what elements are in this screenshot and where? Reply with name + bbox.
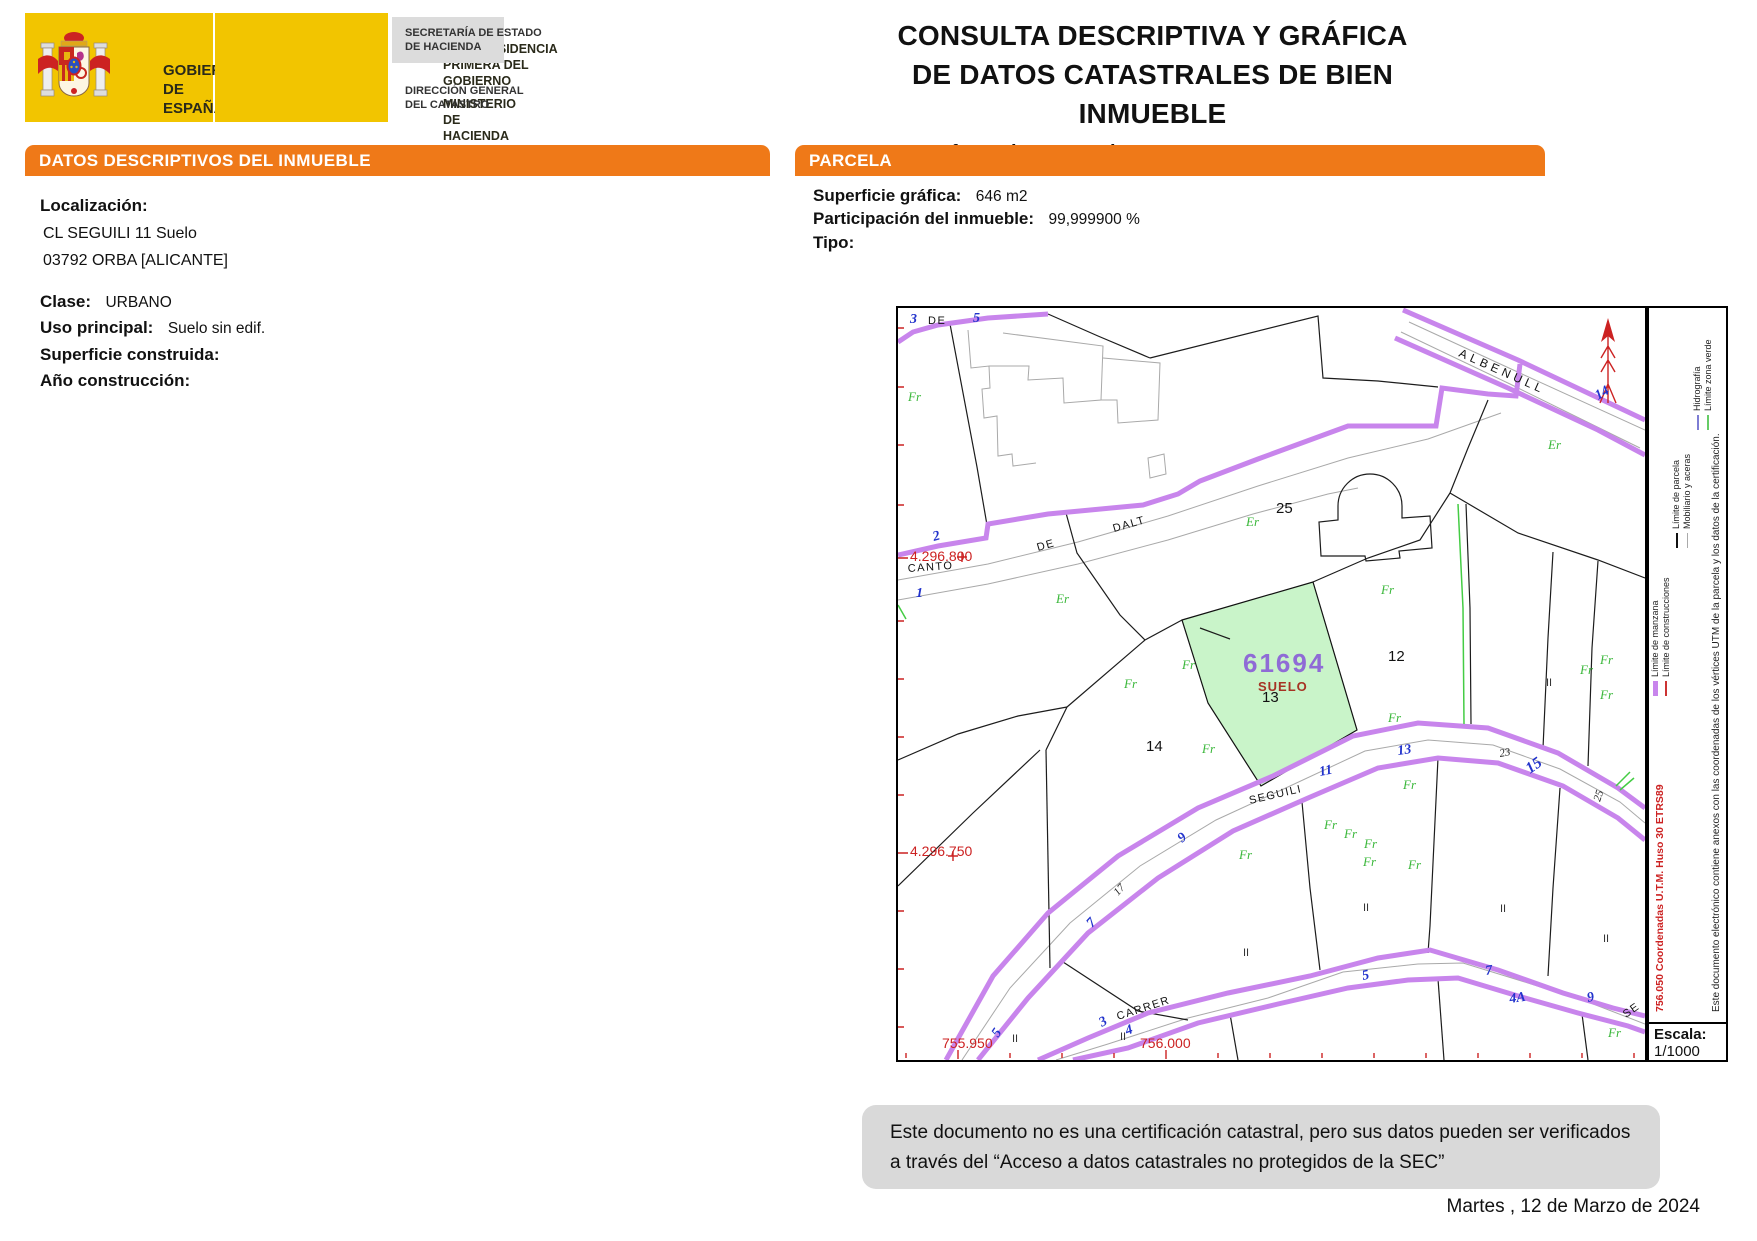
- map-label: II: [1546, 677, 1552, 689]
- legend-certification-note: Este documento electrónico contiene anex…: [1711, 433, 1722, 1012]
- cadastral-document-page: GOBIERNO DE ESPAÑA VICEPRESIDENCIA PRIME…: [0, 0, 1757, 1241]
- map-label: Fr: [1181, 657, 1196, 672]
- direccion-catastro-label: DIRECCIÓN GENERAL DEL CATASTRO: [405, 84, 524, 112]
- participacion-value: 99,999900 %: [1049, 211, 1140, 228]
- map-label: 23: [1498, 746, 1511, 760]
- map-label: Er: [1547, 437, 1562, 452]
- map-label: II: [1500, 903, 1506, 915]
- map-label: DE: [1036, 537, 1057, 554]
- map-label: DE: [928, 315, 946, 327]
- spain-coat-of-arms-icon: [37, 29, 111, 109]
- map-label: Fr: [1343, 826, 1358, 841]
- map-label: Fr: [1201, 741, 1216, 756]
- parcela-header-label: PARCELA: [809, 151, 892, 170]
- map-label: Fr: [1579, 662, 1594, 677]
- legend-item-label: Límite zona verde: [1703, 339, 1713, 411]
- tipo-label: Tipo:: [813, 233, 854, 252]
- superficie-construida-label: Superficie construida:: [40, 345, 219, 364]
- datos-header-bold: INMUEBLE: [278, 151, 371, 170]
- map-label: Er: [1245, 514, 1260, 529]
- map-label: Fr: [1402, 777, 1417, 792]
- map-label: 25: [1276, 500, 1293, 517]
- ministry-block: VICEPRESIDENCIA PRIMERA DEL GOBIERNO MIN…: [215, 13, 388, 122]
- map-label: Fr: [1362, 854, 1377, 869]
- legend-swatch-icon: [1676, 533, 1678, 548]
- superficie-grafica-label: Superficie gráfica:: [813, 186, 961, 205]
- legend-item: Límite de parcela: [1671, 460, 1681, 548]
- map-label: 5: [973, 311, 980, 326]
- document-title: CONSULTA DESCRIPTIVA Y GRÁFICA DE DATOS …: [845, 16, 1460, 165]
- map-label: 756.000: [1140, 1035, 1191, 1051]
- section-header-datos-descriptivos: DATOS DESCRIPTIVOS DEL INMUEBLE: [25, 145, 770, 176]
- participacion-row: Participación del inmueble: 99,999900 %: [813, 209, 1140, 229]
- map-label: Fr: [1380, 582, 1395, 597]
- map-label: 14: [1146, 738, 1163, 755]
- escala-label: Escala:: [1654, 1026, 1721, 1043]
- dome-building-outline: [1319, 474, 1432, 561]
- legend-swatch-icon: [1665, 681, 1667, 696]
- map-label: 4.296.750: [910, 843, 972, 859]
- map-label: 25: [1591, 788, 1606, 803]
- superficie-grafica-row: Superficie gráfica: 646 m2: [813, 186, 1027, 206]
- uso-principal-value: Suelo sin edif.: [168, 320, 265, 337]
- map-label: SE: [1621, 1000, 1642, 1020]
- tipo-row: Tipo:: [813, 233, 864, 253]
- map-label: 1: [916, 586, 923, 601]
- map-label: 3: [909, 312, 917, 327]
- map-label: Fr: [1599, 687, 1614, 702]
- disclaimer-box: Este documento no es una certificación c…: [862, 1105, 1660, 1189]
- legend-item-label: Límite de construcciones: [1661, 577, 1671, 677]
- legend-item: Límite de construcciones: [1661, 577, 1671, 696]
- gov-logo-block: GOBIERNO DE ESPAÑA: [25, 13, 213, 122]
- map-label: 4A: [1507, 990, 1526, 1007]
- legend-item-label: Límite de parcela: [1671, 460, 1681, 529]
- disclaimer-text: Este documento no es una certificación c…: [890, 1122, 1630, 1173]
- legend-item: Límite de manzana: [1650, 600, 1660, 696]
- parcel-parcel_id: 61694: [1243, 648, 1325, 678]
- legend-item-label: Mobiliario y aceras: [1682, 454, 1692, 529]
- map-label: II: [1243, 947, 1249, 959]
- document-date: Martes , 12 de Marzo de 2024: [1330, 1196, 1700, 1218]
- parcel-parcel_tag: SUELO: [1258, 679, 1308, 694]
- map-label: DALT: [1112, 514, 1147, 535]
- uso-principal-label: Uso principal:: [40, 318, 153, 337]
- map-label: Fr: [907, 389, 922, 404]
- uso-row: Uso principal: Suelo sin edif.: [40, 318, 265, 338]
- address-line-1: CL SEGUILI 11 Suelo: [43, 225, 197, 243]
- map-labels: 3DE5Fr24.296.800CANTO1DEDALTErEr25ALBENU…: [907, 311, 1642, 1051]
- section-header-parcela: PARCELA: [795, 145, 1545, 176]
- map-label: Fr: [1407, 857, 1422, 872]
- map-label: II: [1603, 933, 1609, 945]
- map-label: Fr: [1323, 817, 1338, 832]
- map-label: 2: [930, 529, 942, 546]
- legend-swatch-icon: [1653, 681, 1658, 696]
- legend-item: Hidrografía: [1692, 366, 1702, 430]
- localizacion-label: Localización:: [40, 196, 148, 215]
- superficie-construida-row: Superficie construida:: [40, 345, 229, 365]
- map-label: Fr: [1387, 710, 1402, 725]
- title-line-1: CONSULTA DESCRIPTIVA Y GRÁFICA: [845, 16, 1460, 55]
- map-label: Fr: [1599, 652, 1614, 667]
- datos-header-prefix: DATOS DESCRIPTIVOS DEL: [39, 151, 278, 170]
- map-label: II: [1363, 902, 1369, 914]
- legend-swatch-icon: [1687, 533, 1688, 548]
- map-label: Fr: [1123, 676, 1138, 691]
- clase-label: Clase:: [40, 292, 91, 311]
- legend-utm-note: 756.050 Coordenadas U.T.M. Huso 30 ETRS8…: [1654, 784, 1666, 1012]
- superficie-grafica-value: 646 m2: [976, 188, 1028, 205]
- anio-construccion-label: Año construcción:: [40, 371, 190, 390]
- map-label: II: [1012, 1033, 1018, 1045]
- map-label: 755.950: [942, 1035, 993, 1051]
- clase-row: Clase: URBANO: [40, 292, 172, 312]
- legend-item: Mobiliario y aceras: [1682, 454, 1692, 548]
- clase-value: URBANO: [105, 294, 171, 311]
- map-label: 12: [1388, 648, 1405, 665]
- secretaria-label: SECRETARÍA DE ESTADO DE HACIENDA: [405, 26, 542, 54]
- map-label: 5: [1361, 968, 1371, 984]
- escala-value: 1/1000: [1654, 1043, 1721, 1060]
- map-label: 13: [1396, 742, 1412, 759]
- legend-item-label: Límite de manzana: [1650, 600, 1660, 677]
- localizacion-row: Localización:: [40, 196, 148, 216]
- legend-item: Límite zona verde: [1703, 339, 1713, 430]
- map-label: 9: [1586, 990, 1596, 1006]
- legend-swatch-icon: [1697, 415, 1699, 430]
- anio-construccion-row: Año construcción:: [40, 371, 200, 391]
- legend-swatch-icon: [1707, 415, 1709, 430]
- cadastral-map: 3DE5Fr24.296.800CANTO1DEDALTErEr25ALBENU…: [896, 306, 1647, 1062]
- map-label: Fr: [1238, 847, 1253, 862]
- legend-rotated-content: 756.050 Coordenadas U.T.M. Huso 30 ETRS8…: [1649, 308, 1724, 1018]
- address-line-2: 03792 ORBA [ALICANTE]: [43, 252, 228, 270]
- scale-box: Escala: 1/1000: [1647, 1022, 1728, 1062]
- map-legend: 756.050 Coordenadas U.T.M. Huso 30 ETRS8…: [1647, 306, 1728, 1024]
- participacion-label: Participación del inmueble:: [813, 209, 1034, 228]
- map-label: Fr: [1363, 836, 1378, 851]
- title-line-2: DE DATOS CATASTRALES DE BIEN INMUEBLE: [845, 55, 1460, 133]
- map-label: Fr: [1607, 1025, 1622, 1040]
- map-label: 11: [1318, 763, 1334, 780]
- map-label: Er: [1055, 591, 1070, 606]
- legend-item-label: Hidrografía: [1692, 366, 1702, 411]
- map-label: 17: [1111, 881, 1128, 898]
- cadastral-map-svg: 3DE5Fr24.296.800CANTO1DEDALTErEr25ALBENU…: [898, 308, 1645, 1060]
- map-label: CANTO: [907, 560, 954, 575]
